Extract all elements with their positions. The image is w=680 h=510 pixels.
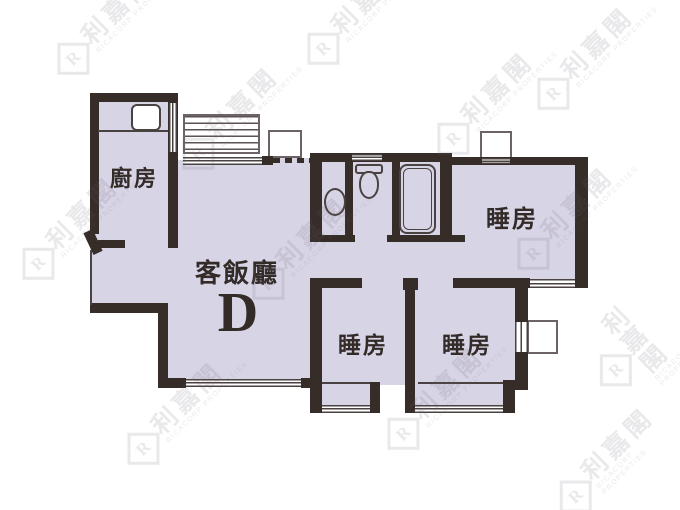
wall-kitchen-left <box>90 93 99 234</box>
ricacorp-logo-icon: R <box>560 481 592 510</box>
wall-basin-toilet <box>345 162 353 235</box>
bedroom-bl-bay-window <box>322 405 370 413</box>
washbasin-icon <box>324 188 346 216</box>
wall-living-step <box>158 303 168 388</box>
wall-foyer-bottom <box>90 303 168 313</box>
kitchen-label: 廚房 <box>110 161 158 193</box>
ricacorp-logo-icon: R <box>127 433 159 465</box>
bedroom-br-ac-window <box>515 322 528 352</box>
ricacorp-logo-icon: R <box>307 33 339 65</box>
wall-bathroom-left <box>310 155 322 242</box>
wall-br-bay-right <box>503 388 515 413</box>
wall-bedroom-top-top <box>452 157 588 165</box>
living-top-sliding-opening <box>273 158 310 163</box>
floorplan-canvas: 廚房 客飯廳 D 睡房 睡房 睡房 R 利嘉閣RICACORP PROPERTI… <box>0 0 680 510</box>
wall-bedroom-top-right <box>575 157 588 288</box>
wall-bedroom-divider <box>405 288 415 413</box>
toilet-bowl-icon <box>359 171 379 199</box>
bedroom-top-top-window <box>482 158 510 164</box>
foyer-left-line <box>90 250 92 305</box>
wall-bedroom-br-right-upper <box>515 278 528 322</box>
wall-bedroom-bl-left <box>310 278 322 413</box>
window-box-top-right-icon <box>480 131 512 159</box>
wall-bathroom-bottom-right <box>387 235 465 242</box>
living-top-window <box>183 157 262 165</box>
unit-letter: D <box>218 281 258 345</box>
living-bottom-window <box>186 379 301 387</box>
louver-window-icon <box>183 114 260 154</box>
watermark: R 利嘉閣RICACORP PROPERTIES <box>530 0 660 117</box>
watermark: R 利嘉閣RICACORP PROPERTIES <box>300 0 430 72</box>
foyer-floor <box>92 246 178 306</box>
bedroom-bottom-left-label: 睡房 <box>338 326 388 360</box>
bathtub-inner-line <box>403 168 432 230</box>
kitchen-wall-window <box>169 103 177 152</box>
bedroom-br-bay-window <box>415 405 503 413</box>
wall-bathroom-right <box>440 153 452 242</box>
bedroom-br-bay-sill <box>418 382 503 384</box>
window-box-icon <box>268 130 302 158</box>
wall-living-top-pier <box>262 156 273 165</box>
ricacorp-logo-icon: R <box>437 123 469 155</box>
watermark: R 利嘉閣RICACORP PROPERTIES <box>50 0 180 82</box>
bedroom-top-label: 睡房 <box>486 199 538 234</box>
living-floor-lower <box>164 300 224 382</box>
bedroom-bl-bay-sill <box>322 382 370 384</box>
kitchen-sink-icon <box>131 104 161 131</box>
toilet-window <box>352 154 382 161</box>
watermark: R 利嘉閣RICACORP PROPERTIES <box>550 398 674 510</box>
wall-bl-bay-right <box>370 382 380 413</box>
ricacorp-logo-icon: R <box>600 354 632 386</box>
wall-kitchen-bottom-stub <box>98 240 125 248</box>
wall-kitchen-top <box>90 93 178 102</box>
wall-bathroom-bottom-left <box>310 235 355 242</box>
ricacorp-logo-icon: R <box>22 248 54 280</box>
bedroom-bottom-right-label: 睡房 <box>442 326 492 360</box>
ricacorp-logo-icon: R <box>387 418 419 450</box>
wall-living-bottom-left-cap <box>168 378 186 388</box>
corridor-floor <box>314 240 446 280</box>
ac-platform-icon <box>527 320 558 354</box>
bedroom-top-bottom-window <box>530 279 575 288</box>
watermark: R 利嘉閣RICACORP PROPERTIES <box>571 279 680 414</box>
ricacorp-logo-icon: R <box>57 43 89 75</box>
ricacorp-logo-icon: R <box>537 78 569 110</box>
